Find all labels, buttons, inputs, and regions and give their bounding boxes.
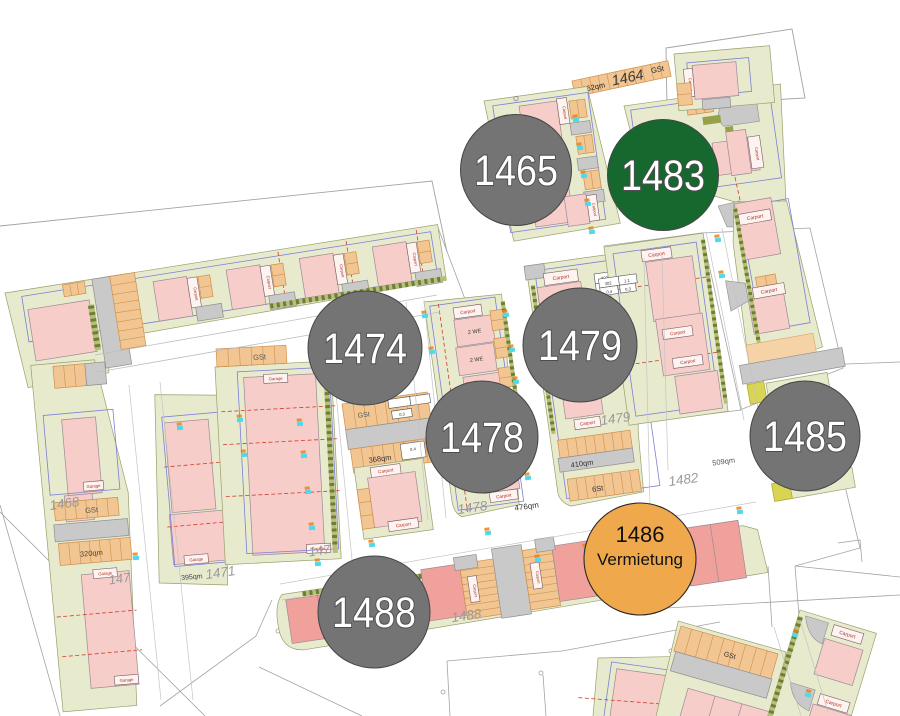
svg-text:1486: 1486 <box>616 522 665 547</box>
svg-text:1474: 1474 <box>323 325 407 373</box>
svg-text:Garage: Garage <box>269 376 284 382</box>
svg-text:147: 147 <box>108 570 132 588</box>
svg-text:1478: 1478 <box>440 414 524 462</box>
svg-text:1485: 1485 <box>763 413 847 461</box>
svg-text:GSt: GSt <box>85 505 100 515</box>
svg-text:1483: 1483 <box>621 152 705 200</box>
svg-text:1488: 1488 <box>332 589 416 637</box>
svg-text:302: 302 <box>604 280 612 286</box>
svg-text:1479: 1479 <box>538 322 622 370</box>
svg-text:1465: 1465 <box>474 147 558 195</box>
svg-text:6St: 6St <box>591 483 604 494</box>
svg-text:GSt: GSt <box>253 352 267 362</box>
svg-text:Vermietung: Vermietung <box>597 550 683 569</box>
svg-text:147: 147 <box>308 542 332 560</box>
